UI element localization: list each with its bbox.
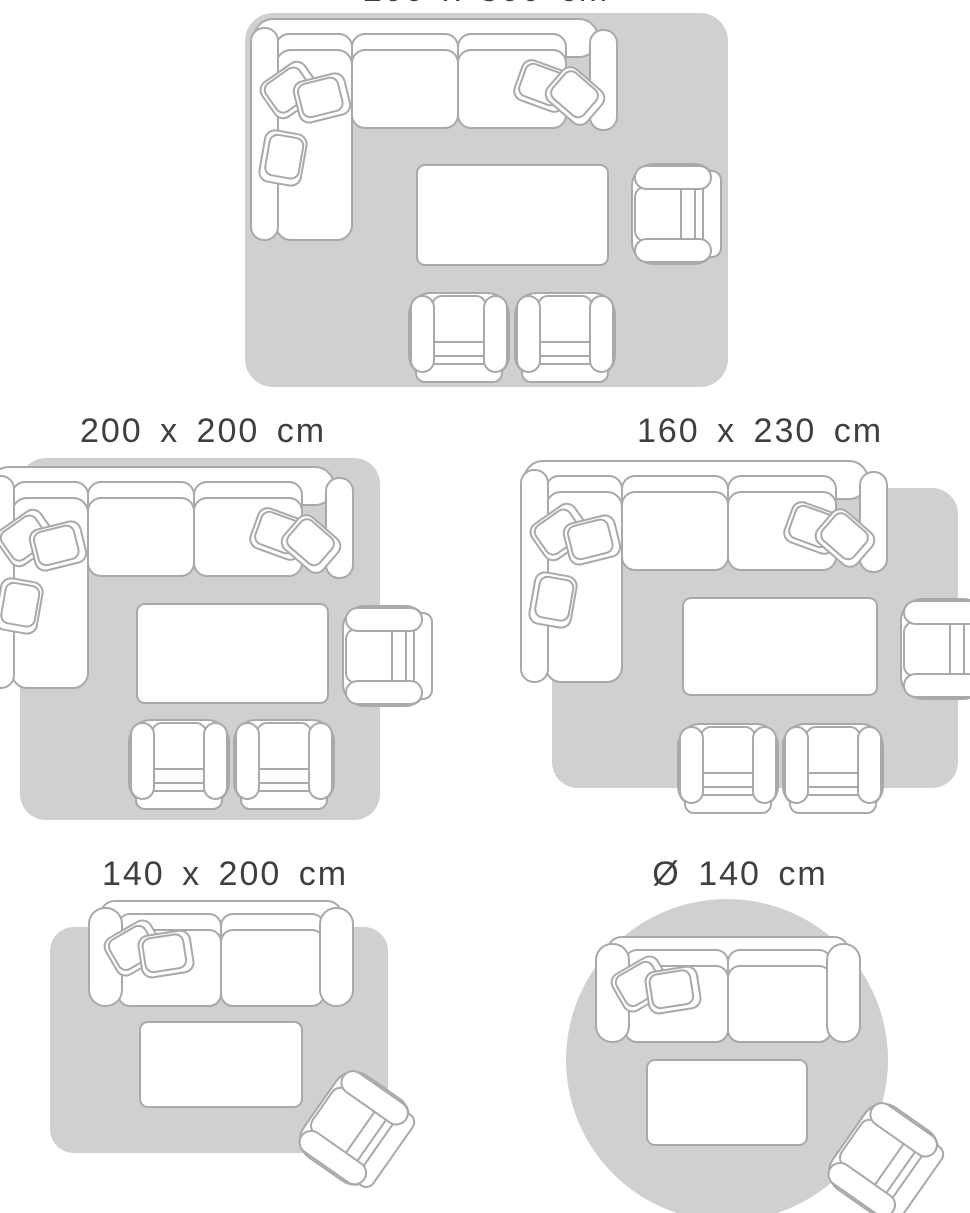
- size-label-round-140: Ø 140 cm: [652, 853, 827, 895]
- front-armchair-icon: [783, 724, 883, 813]
- panel-200x300: [245, 13, 728, 387]
- coffee-table-icon: [683, 598, 877, 695]
- coffee-table-icon: [417, 165, 608, 265]
- coffee-table-icon: [140, 1022, 302, 1107]
- panel-round-140: [566, 899, 951, 1213]
- front-armchair-icon: [409, 293, 509, 382]
- side-armchair-icon: [343, 606, 432, 706]
- two-seat-sofa-icon: [596, 937, 860, 1042]
- panel-140x200: [50, 901, 422, 1196]
- front-armchair-icon: [515, 293, 615, 382]
- panel-160x230: [521, 461, 970, 813]
- size-label-200x300: 200 x 300 cm: [363, 0, 609, 11]
- size-label-160x230: 160 x 230 cm: [637, 410, 883, 452]
- rug-size-guide-illustration: [0, 0, 970, 1213]
- two-seat-sofa-icon: [89, 901, 353, 1006]
- coffee-table-icon: [137, 604, 328, 703]
- side-armchair-icon: [901, 599, 970, 699]
- size-label-200x200: 200 x 200 cm: [80, 410, 326, 452]
- front-armchair-icon: [678, 724, 778, 813]
- size-label-140x200: 140 x 200 cm: [102, 853, 348, 895]
- front-armchair-icon: [129, 720, 229, 809]
- coffee-table-icon: [647, 1060, 807, 1145]
- front-armchair-icon: [234, 720, 334, 809]
- panel-200x200: [0, 458, 432, 820]
- side-armchair-icon: [632, 164, 721, 264]
